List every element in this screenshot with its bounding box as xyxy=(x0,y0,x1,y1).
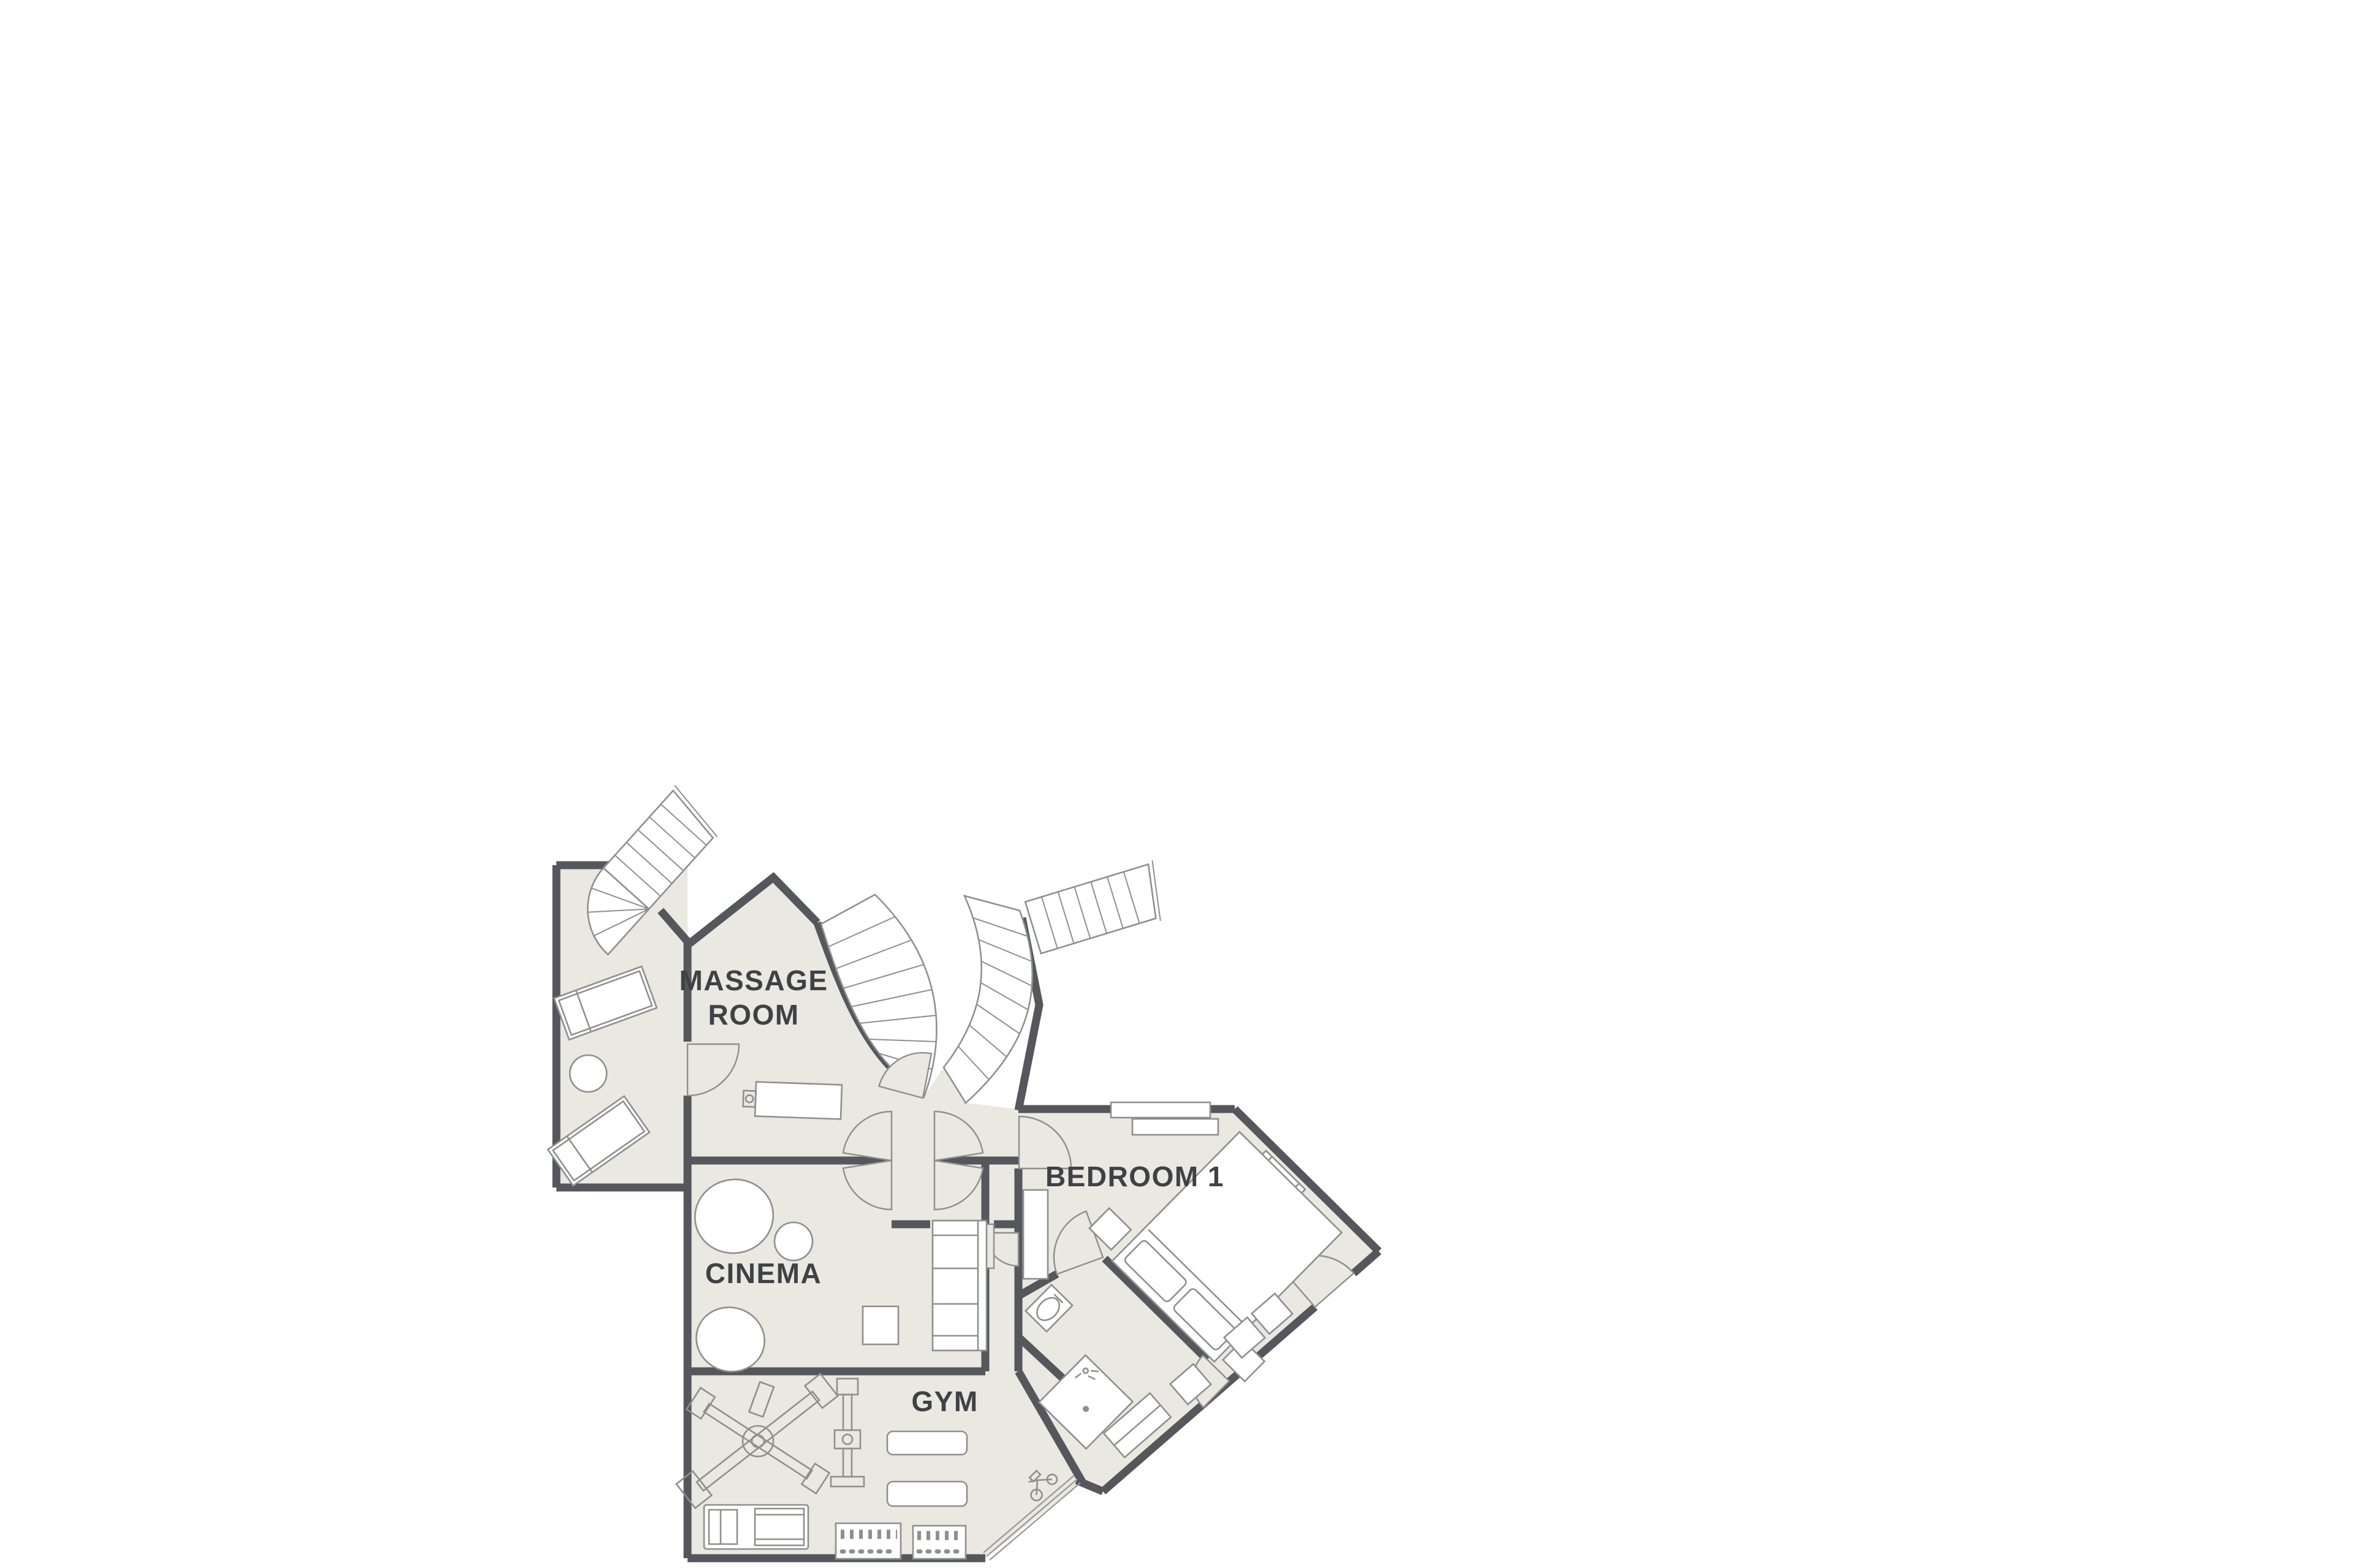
terrace-table xyxy=(570,1055,607,1092)
gym-bench xyxy=(887,1431,967,1455)
upper-flight-stairs xyxy=(1025,860,1170,956)
floor-plan-page: MASSAGE ROOM CINEMA GYM BEDROOM 1 xyxy=(0,0,2353,1568)
side-table xyxy=(863,1306,898,1344)
window-bench xyxy=(1132,1119,1218,1135)
massage-furniture xyxy=(743,1081,842,1119)
pouf xyxy=(775,1222,813,1260)
right-winder-stairs xyxy=(944,896,1033,1103)
treadmill xyxy=(704,1505,808,1549)
floor-plan: MASSAGE ROOM CINEMA GYM BEDROOM 1 xyxy=(0,0,2353,1568)
gym-label: GYM xyxy=(911,1385,978,1417)
dumbbell-rack xyxy=(913,1526,966,1559)
massage-room-label-line2: ROOM xyxy=(708,999,799,1031)
cinema-label: CINEMA xyxy=(705,1257,822,1289)
bedroom-window xyxy=(1111,1102,1210,1118)
bedroom-label: BEDROOM 1 xyxy=(1045,1161,1224,1192)
gym-bench xyxy=(887,1482,967,1506)
massage-room-label: MASSAGE xyxy=(679,964,828,996)
dumbbell-rack xyxy=(836,1523,901,1559)
sofa xyxy=(933,1221,987,1350)
wardrobe xyxy=(1023,1190,1048,1279)
massage-table xyxy=(755,1082,842,1119)
